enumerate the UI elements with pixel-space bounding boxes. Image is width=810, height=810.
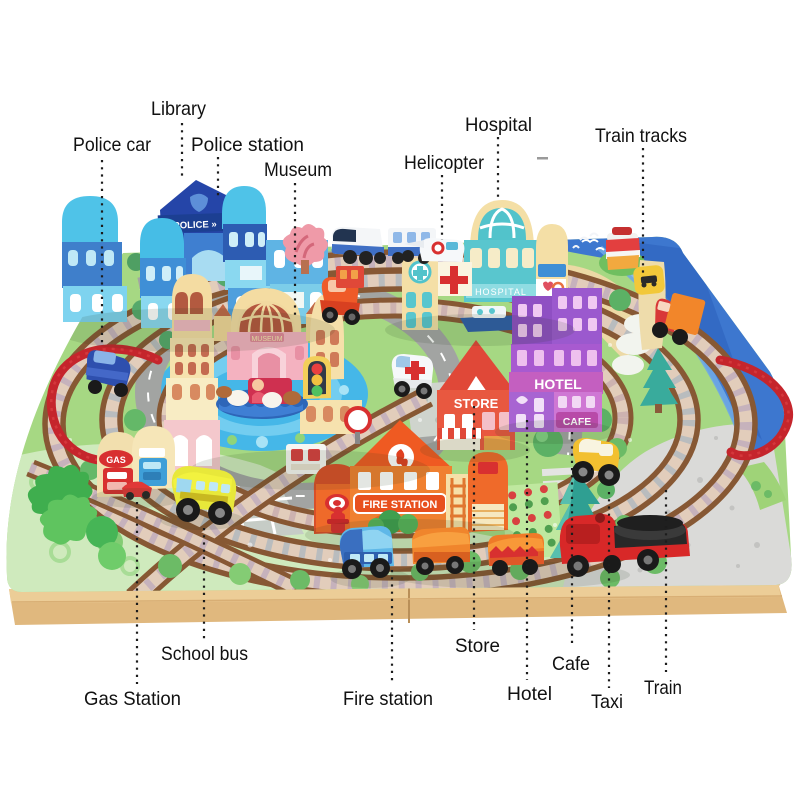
svg-text:Store: Store [455, 635, 500, 657]
svg-text:Police station: Police station [191, 134, 304, 156]
svg-text:GAS: GAS [106, 455, 126, 465]
svg-text:Hotel: Hotel [507, 683, 552, 705]
svg-text:Helicopter: Helicopter [404, 152, 484, 174]
svg-text:Cafe: Cafe [552, 653, 590, 675]
svg-text:HOSPITAL: HOSPITAL [475, 287, 527, 297]
svg-text:HOTEL: HOTEL [534, 376, 582, 392]
svg-text:Police car: Police car [73, 134, 151, 156]
svg-text:FIRE STATION: FIRE STATION [363, 499, 438, 511]
svg-text:STORE: STORE [454, 396, 499, 411]
svg-text:Library: Library [151, 98, 206, 120]
svg-text:Taxi: Taxi [591, 691, 623, 713]
svg-text:Hospital: Hospital [465, 114, 532, 136]
svg-text:School bus: School bus [161, 643, 248, 665]
svg-text:Train tracks: Train tracks [595, 125, 687, 147]
svg-text:Train: Train [644, 677, 682, 699]
svg-text:Museum: Museum [264, 159, 332, 181]
svg-text:Gas Station: Gas Station [84, 688, 181, 710]
svg-text:Fire station: Fire station [343, 688, 433, 710]
